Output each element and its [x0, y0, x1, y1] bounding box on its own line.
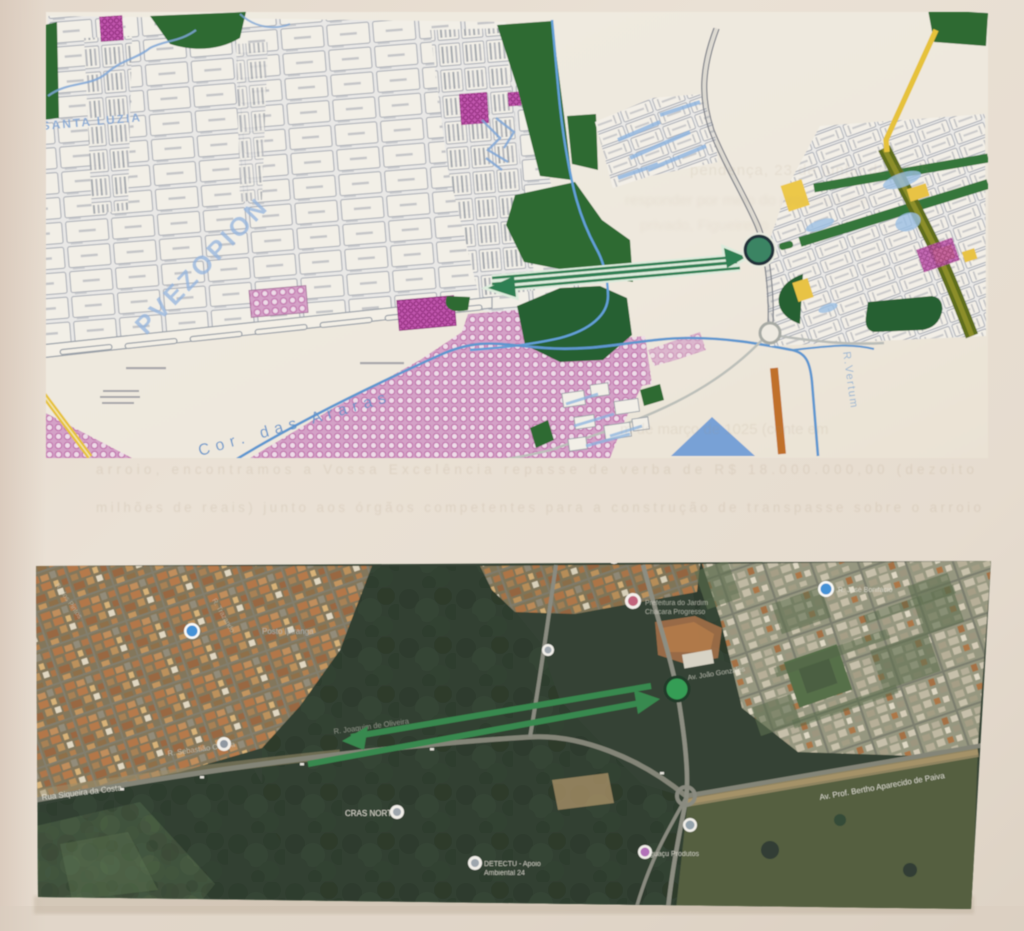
svg-text:pendença, 23 de junho de 2025: pendença, 23 de junho de 2025 [690, 162, 930, 179]
svg-text:privado, Figueiredo: privado, Figueiredo [640, 217, 768, 234]
svg-text:m de março de 1025 (conte em: m de março de 1025 (conte em [620, 421, 828, 438]
svg-text:responder por meio do processo: responder por meio do processo que [625, 192, 870, 209]
